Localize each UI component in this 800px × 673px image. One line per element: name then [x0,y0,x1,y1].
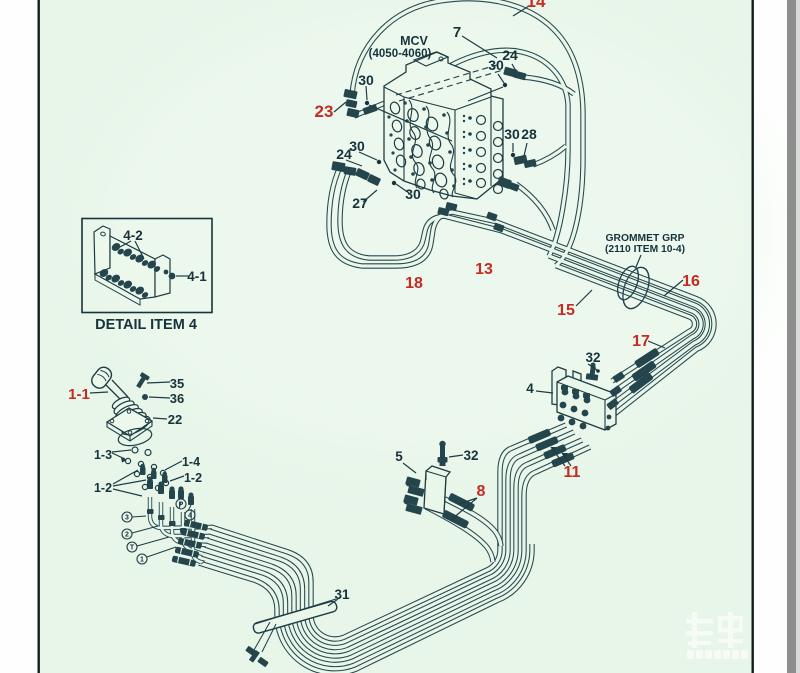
svg-text:32: 32 [463,448,478,463]
svg-text:16: 16 [682,273,700,290]
svg-text:8: 8 [477,483,486,500]
svg-text:13: 13 [475,261,493,278]
svg-text:32: 32 [585,350,600,365]
svg-text:DETAIL ITEM 4: DETAIL ITEM 4 [95,317,197,333]
svg-text:30: 30 [358,72,374,88]
svg-text:14: 14 [527,0,546,11]
svg-text:1-1: 1-1 [68,386,90,403]
svg-text:24: 24 [502,47,518,63]
svg-text:4: 4 [188,513,192,520]
svg-text:1-3: 1-3 [94,448,112,462]
svg-text:15: 15 [557,302,575,319]
svg-text:11: 11 [564,464,581,481]
svg-text:36: 36 [170,391,184,406]
svg-text:2: 2 [125,532,129,539]
svg-text:1-2: 1-2 [184,471,202,485]
svg-text:1-2: 1-2 [94,481,112,495]
svg-text:24: 24 [336,146,352,162]
svg-text:3: 3 [125,515,129,522]
svg-text:1: 1 [140,557,144,564]
svg-text:30: 30 [405,186,421,202]
svg-text:4-2: 4-2 [123,228,143,243]
svg-text:31: 31 [334,587,350,602]
svg-text:(2110 ITEM 10-4): (2110 ITEM 10-4) [605,244,685,255]
svg-text:(4050-4060): (4050-4060) [369,48,432,60]
svg-text:28: 28 [521,126,537,142]
svg-text:GROMMET GRP: GROMMET GRP [606,233,685,244]
svg-text:7: 7 [453,24,461,41]
svg-text:4: 4 [526,381,534,396]
svg-text:4-1: 4-1 [187,269,207,284]
svg-text:18: 18 [405,275,423,292]
svg-text:17: 17 [632,333,650,350]
svg-text:35: 35 [170,376,184,391]
svg-text:T: T [130,545,135,552]
svg-text:22: 22 [168,412,182,427]
svg-text:30: 30 [488,57,504,73]
svg-text:23: 23 [315,102,334,121]
svg-text:MCV: MCV [400,34,428,48]
svg-text:30: 30 [504,126,520,142]
svg-text:1-4: 1-4 [182,455,200,469]
svg-text:27: 27 [352,195,368,211]
svg-text:5: 5 [395,449,403,464]
